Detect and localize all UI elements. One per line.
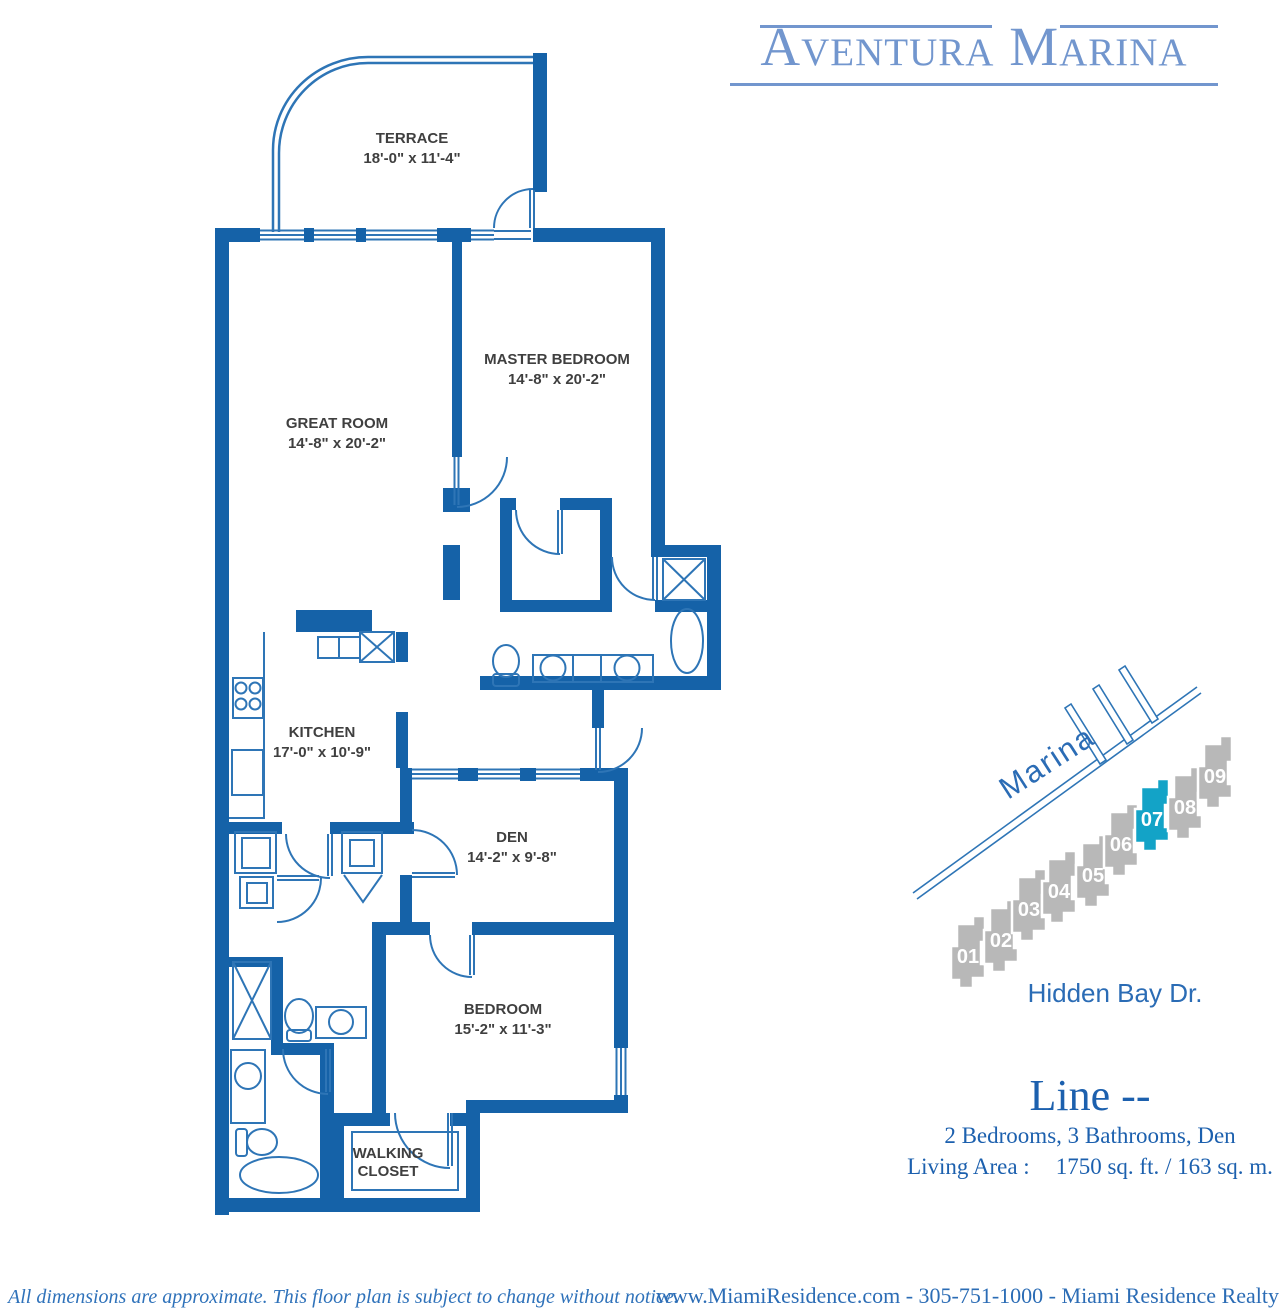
footer-disclaimer: All dimensions are approximate. This flo…: [8, 1286, 679, 1309]
master-bedroom-dims: 14'-8" x 20'-2": [508, 371, 606, 388]
great-room-label: GREAT ROOM: [286, 415, 388, 432]
linen-closet: [342, 832, 382, 873]
bifold-door: [344, 875, 382, 902]
site-map: Marina 01 02 03 04 05 06 07 08 09 Hidden…: [913, 666, 1232, 1008]
buildings: 01 02 03 04 05 06 07 08 09: [951, 736, 1232, 988]
kitchen-dims: 17'-0" x 10'-9": [273, 744, 371, 761]
floor-plan: TERRACE 18'-0" x 11'-4" MASTER BEDROOM 1…: [215, 53, 721, 1215]
building-07-highlighted: 07: [1135, 779, 1169, 851]
marina-label: Marina: [993, 718, 1102, 806]
brand-logo: Aventura Marina: [730, 14, 1218, 88]
bathtub-master: [671, 609, 703, 673]
svg-text:05: 05: [1082, 865, 1104, 887]
svg-text:09: 09: [1204, 766, 1226, 788]
vanity-3: [231, 1050, 265, 1123]
living-area-label: Living Area :: [907, 1154, 1030, 1179]
footer-contact: www.MiamiResidence.com - 305-751-1000 - …: [656, 1283, 1279, 1309]
footer: All dimensions are approximate. This flo…: [0, 1281, 1287, 1311]
den-dims: 14'-2" x 9'-8": [467, 849, 557, 866]
den-label: DEN: [496, 829, 528, 846]
pantry-box: [360, 632, 394, 662]
svg-text:08: 08: [1174, 797, 1196, 819]
line-title: Line --: [880, 1072, 1287, 1120]
vanity-2: [316, 1007, 366, 1038]
street-label: Hidden Bay Dr.: [1028, 978, 1203, 1008]
walking-closet-label-2: CLOSET: [358, 1163, 419, 1180]
shower-master: [663, 559, 705, 600]
building-04: 04: [1042, 851, 1076, 923]
svg-text:02: 02: [990, 930, 1012, 952]
svg-text:03: 03: [1018, 899, 1040, 921]
logo-rule-top-1: [760, 25, 992, 28]
floorplan-sheet: { "brand": { "logo_text": "Aventura Mari…: [0, 0, 1287, 1315]
terrace-dims: 18'-0" x 11'-4": [363, 150, 460, 167]
bedroom-dims: 15'-2" x 11'-3": [454, 1021, 551, 1038]
living-area: Living Area :1750 sq. ft. / 163 sq. m.: [880, 1151, 1287, 1182]
svg-text:07: 07: [1141, 809, 1163, 831]
logo-rule-top-2: [1060, 25, 1218, 28]
building-09: 09: [1198, 736, 1232, 808]
kitchen-counter: [229, 632, 264, 818]
building-01: 01: [951, 916, 985, 988]
washer: [235, 832, 276, 873]
logo-underline: [730, 83, 1218, 86]
kitchen-label: KITCHEN: [289, 724, 356, 741]
toilet-2: [285, 999, 313, 1041]
stove: [233, 678, 263, 718]
bathtub-3: [240, 1157, 318, 1193]
walking-closet-label-1: WALKING: [353, 1145, 424, 1162]
bedroom-label: BEDROOM: [464, 1001, 542, 1018]
master-bedroom-label: MASTER BEDROOM: [484, 351, 630, 368]
terrace-label: TERRACE: [376, 130, 449, 147]
svg-text:04: 04: [1048, 881, 1071, 903]
dryer: [240, 877, 273, 908]
svg-text:01: 01: [957, 946, 979, 968]
unit-info: Line -- 2 Bedrooms, 3 Bathrooms, Den Liv…: [880, 1072, 1287, 1182]
shower-2: [233, 962, 271, 1039]
building-06: 06: [1104, 804, 1138, 876]
toilet-3: [236, 1129, 277, 1156]
svg-text:06: 06: [1110, 834, 1132, 856]
great-room-dims: 14'-8" x 20'-2": [288, 435, 386, 452]
kitchen-sink: [318, 637, 360, 658]
living-area-value: 1750 sq. ft. / 163 sq. m.: [1056, 1154, 1273, 1179]
unit-config: 2 Bedrooms, 3 Bathrooms, Den: [880, 1120, 1287, 1151]
brand-logo-text: Aventura Marina: [730, 14, 1218, 80]
